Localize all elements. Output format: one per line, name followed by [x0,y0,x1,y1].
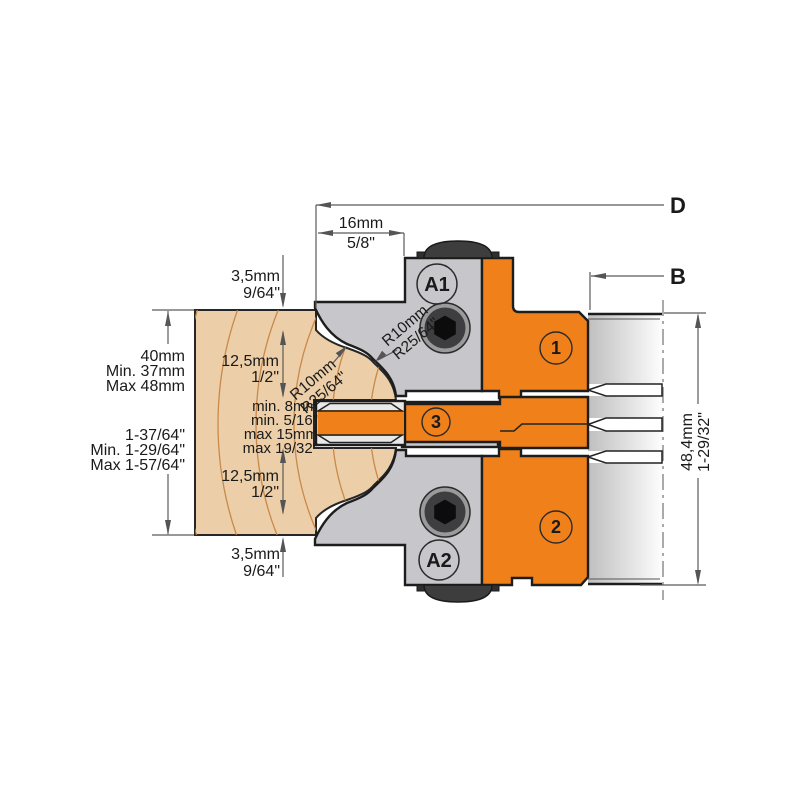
svg-text:48,4mm: 48,4mm [679,413,696,471]
blade-stack [588,313,662,584]
svg-text:12,5mm: 12,5mm [221,468,279,485]
svg-text:1/2": 1/2" [251,484,279,501]
svg-text:1/2": 1/2" [251,369,279,386]
dim-stock-metric: 40mm Min. 37mm Max 48mm [106,348,185,395]
dim-b-label: B [670,264,686,289]
carbide-tip [316,401,405,445]
knife-gap-3 [588,451,662,463]
knife-gap-2 [588,418,662,431]
badge-a1-label: A1 [424,274,450,296]
dim-stock-imperial: 1-37/64" Min. 1-29/64" Max 1-57/64" [90,427,185,474]
technical-drawing: A1 A2 1 2 3 [0,0,800,800]
svg-text:12,5mm: 12,5mm [221,353,279,370]
knife-gap-1 [588,384,662,396]
dim-step-bottom: 3,5mm 9/64" [231,546,280,580]
badge-a2-label: A2 [426,550,452,572]
svg-text:3,5mm: 3,5mm [231,268,280,285]
svg-text:9/64": 9/64" [243,563,280,580]
svg-text:1-29/32": 1-29/32" [696,412,713,472]
svg-text:9/64": 9/64" [243,285,280,302]
svg-text:Max 1-57/64": Max 1-57/64" [90,457,185,474]
knife-holder-1 [482,258,588,398]
hex-socket-screw-bottom-icon [420,487,470,537]
svg-text:16mm: 16mm [339,215,383,232]
svg-text:3,5mm: 3,5mm [231,546,280,563]
dim-overall-height: 48,4mm 1-29/32" [679,412,713,472]
cutter-head-diagram: A1 A2 1 2 3 [0,0,800,800]
part-2-label: 2 [551,517,561,537]
svg-text:max 19/32": max 19/32" [243,440,318,457]
dim-d-label: D [670,193,686,218]
part-3-label: 3 [431,412,441,432]
svg-text:Max 48mm: Max 48mm [106,378,185,395]
dim-step-top: 3,5mm 9/64" [231,268,280,302]
part-1-label: 1 [551,338,561,358]
dome-screw-bottom-icon [417,585,499,602]
knife-holder-2 [482,449,588,585]
svg-text:5/8": 5/8" [347,235,375,252]
tongue-cutter [398,397,588,448]
dome-screw-top-icon [417,241,499,258]
